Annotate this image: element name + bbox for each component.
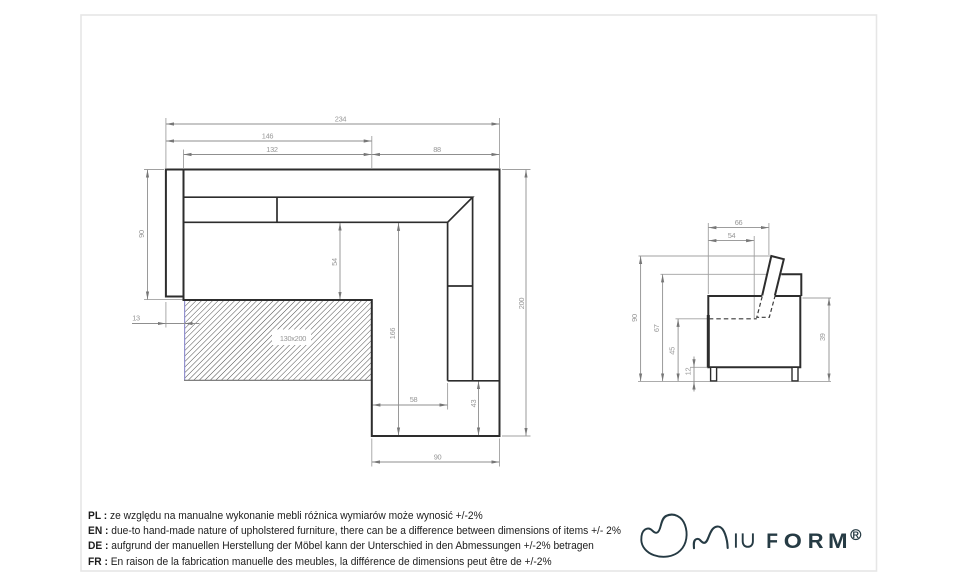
svg-text:67: 67 bbox=[652, 324, 661, 332]
svg-text:39: 39 bbox=[818, 333, 827, 341]
svg-text:234: 234 bbox=[335, 115, 347, 124]
svg-text:90: 90 bbox=[630, 314, 639, 322]
svg-text:58: 58 bbox=[410, 395, 418, 404]
svg-text:132: 132 bbox=[266, 145, 278, 154]
svg-text:12: 12 bbox=[684, 368, 693, 376]
svg-text:54: 54 bbox=[728, 231, 736, 240]
svg-text:66: 66 bbox=[735, 218, 743, 227]
svg-text:M: M bbox=[828, 530, 848, 553]
svg-text:88: 88 bbox=[433, 145, 441, 154]
svg-text:F: F bbox=[766, 530, 778, 553]
svg-text:90: 90 bbox=[434, 453, 442, 462]
svg-text:90: 90 bbox=[137, 230, 146, 238]
svg-text:R: R bbox=[808, 530, 824, 553]
svg-text:43: 43 bbox=[469, 400, 478, 408]
svg-text:45: 45 bbox=[668, 347, 677, 355]
svg-text:13: 13 bbox=[132, 314, 140, 323]
svg-text:200: 200 bbox=[517, 298, 526, 310]
svg-text:130x200: 130x200 bbox=[280, 334, 306, 343]
svg-text:166: 166 bbox=[388, 328, 397, 340]
svg-text:O: O bbox=[784, 530, 802, 553]
svg-text:54: 54 bbox=[330, 258, 339, 266]
svg-text:146: 146 bbox=[262, 132, 274, 141]
svg-text:R: R bbox=[853, 530, 860, 540]
